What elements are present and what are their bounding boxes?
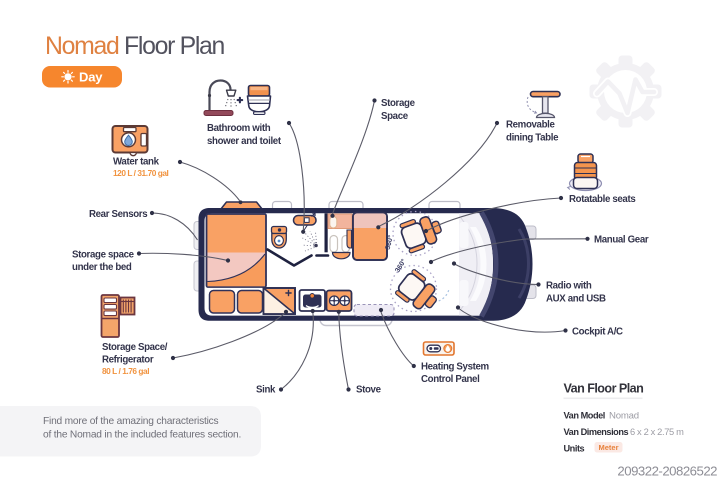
svg-text:Refrigerator: Refrigerator: [102, 355, 154, 366]
svg-text:Nomad Floor Plan: Nomad Floor Plan: [45, 33, 225, 60]
svg-text:AUX and USB: AUX and USB: [546, 294, 606, 305]
svg-text:Day: Day: [79, 70, 103, 85]
svg-text:Cockpit A/C: Cockpit A/C: [572, 327, 623, 338]
svg-text:6 x 2 x 2.75 m: 6 x 2 x 2.75 m: [630, 427, 684, 437]
svg-text:Removable: Removable: [506, 120, 555, 131]
svg-text:Storage Space/: Storage Space/: [102, 342, 168, 353]
svg-text:under the bed: under the bed: [72, 262, 132, 273]
svg-text:209322-20826522: 209322-20826522: [617, 464, 717, 479]
svg-text:Bathroom with: Bathroom with: [207, 123, 271, 134]
svg-text:dining Table: dining Table: [506, 133, 559, 144]
svg-text:80 L / 1.76 gal: 80 L / 1.76 gal: [102, 366, 149, 376]
svg-text:Nomad: Nomad: [609, 411, 639, 422]
svg-text:Space: Space: [381, 111, 409, 122]
svg-text:of the Nomad in the included f: of the Nomad in the included features se…: [43, 430, 241, 441]
svg-text:Units: Units: [564, 444, 585, 454]
svg-text:Storage space: Storage space: [72, 250, 135, 261]
svg-text:Meter: Meter: [598, 443, 618, 452]
svg-text:Control Panel: Control Panel: [421, 374, 479, 385]
svg-text:Water tank: Water tank: [113, 157, 160, 168]
svg-text:Radio with: Radio with: [546, 281, 592, 292]
svg-text:Van Model: Van Model: [564, 411, 605, 421]
svg-text:Rear Sensors: Rear Sensors: [89, 209, 147, 220]
svg-text:120 L / 31.70 gal: 120 L / 31.70 gal: [113, 168, 169, 178]
svg-text:Find more of the amazing chara: Find more of the amazing characteristics: [43, 416, 219, 427]
svg-text:Van Dimensions: Van Dimensions: [564, 427, 629, 437]
svg-text:Stove: Stove: [356, 385, 382, 396]
svg-text:Manual Gear: Manual Gear: [594, 235, 649, 246]
svg-text:Sink: Sink: [256, 385, 276, 396]
svg-text:Storage: Storage: [381, 98, 416, 109]
svg-text:Van Floor Plan: Van Floor Plan: [564, 382, 644, 396]
svg-text:Heating System: Heating System: [421, 362, 490, 373]
svg-text:shower and toilet: shower and toilet: [207, 136, 282, 147]
svg-text:Rotatable seats: Rotatable seats: [569, 194, 635, 205]
